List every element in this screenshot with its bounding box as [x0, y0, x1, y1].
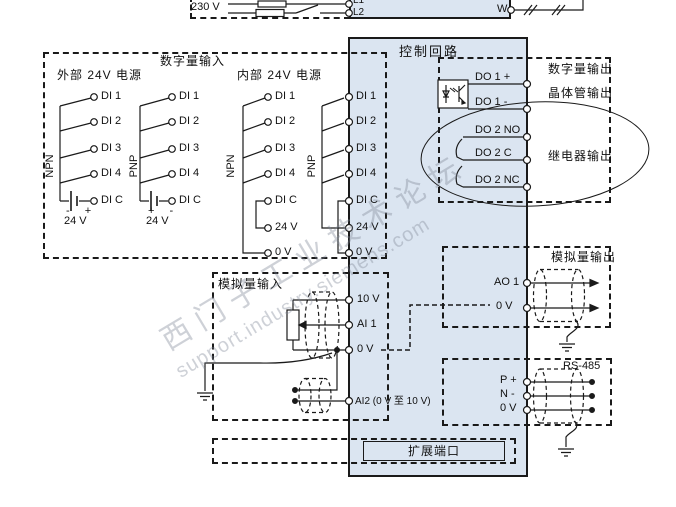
terminal-dic: DI C — [356, 194, 378, 207]
analog-input-title: 模拟量输入 — [218, 277, 283, 291]
terminal-w: W — [497, 3, 507, 16]
wiring-diagram: 230 V L1 L2 W 控制回路 数字量输入 外部 24V 电源 内部 24… — [0, 0, 676, 507]
int-npn-24v: 24 V — [275, 221, 298, 234]
terminal-ai-0v: 0 V — [357, 343, 374, 356]
internal-supply-label: 内部 24V 电源 — [237, 68, 322, 82]
int-npn-di4: DI 4 — [275, 167, 295, 180]
terminal-di1: DI 1 — [356, 90, 376, 103]
transistor-output-label: 晶体管输出 — [548, 86, 613, 100]
terminal-do1p: DO 1 + — [475, 71, 510, 84]
ext-pnp-dic: DI C — [179, 194, 201, 207]
pnp-label-internal: PNP — [306, 146, 318, 186]
ext-pnp-di3: DI 3 — [179, 142, 199, 155]
ext-npn-di3: DI 3 — [101, 142, 121, 155]
digital-output-box — [438, 57, 611, 203]
ext-npn-24v: 24 V — [64, 215, 87, 228]
int-npn-di2: DI 2 — [275, 115, 295, 128]
rs485-title: RS-485 — [563, 360, 600, 373]
ext-npn-di2: DI 2 — [101, 115, 121, 128]
pnp-label-external: PNP — [128, 146, 140, 186]
digital-input-box — [43, 52, 387, 259]
terminal-ai1: AI 1 — [357, 318, 377, 331]
terminal-ao1: AO 1 — [494, 276, 519, 289]
ext-pnp-di1: DI 1 — [179, 90, 199, 103]
control-circuit-title: 控制回路 — [349, 41, 509, 60]
terminal-do2c: DO 2 C — [475, 147, 512, 160]
terminal-p: P + — [500, 374, 517, 387]
terminal-n: N - — [500, 388, 515, 401]
ext-npn-di1: DI 1 — [101, 90, 121, 103]
mains-voltage-label: 230 V — [191, 1, 220, 14]
terminal-0v: 0 V — [356, 246, 373, 259]
int-npn-di3: DI 3 — [275, 142, 295, 155]
terminal-do2nc: DO 2 NC — [475, 174, 520, 187]
terminal-di4: DI 4 — [356, 167, 376, 180]
int-npn-0v: 0 V — [275, 246, 292, 259]
int-npn-di1: DI 1 — [275, 90, 295, 103]
terminal-do1m: DO 1 - — [475, 96, 507, 109]
int-npn-dic: DI C — [275, 194, 297, 207]
ext-npn-dic: DI C — [101, 194, 123, 207]
terminal-di3: DI 3 — [356, 142, 376, 155]
ext-npn-di4: DI 4 — [101, 167, 121, 180]
npn-label-external: NPN — [44, 146, 56, 186]
expansion-port-label: 扩展端口 — [363, 444, 505, 458]
terminal-24v: 24 V — [356, 221, 379, 234]
terminal-ai2: AI2 (0 V 至 10 V) — [355, 395, 431, 408]
terminal-di2: DI 2 — [356, 115, 376, 128]
terminal-rs-0v: 0 V — [500, 402, 517, 415]
external-supply-label: 外部 24V 电源 — [57, 68, 142, 82]
motor-wire — [515, 0, 584, 15]
ext-pnp-24v: 24 V — [146, 215, 169, 228]
terminal-10v: 10 V — [357, 293, 380, 306]
power-circuit-panel — [349, 0, 511, 19]
digital-input-title: 数字量输入 — [160, 54, 225, 68]
ext-pnp-di4: DI 4 — [179, 167, 199, 180]
npn-label-internal: NPN — [225, 146, 237, 186]
digital-output-title: 数字量输出 — [548, 62, 613, 76]
analog-output-title: 模拟量输出 — [551, 250, 616, 264]
ext-pnp-di2: DI 2 — [179, 115, 199, 128]
relay-output-label: 继电器输出 — [548, 149, 613, 163]
terminal-ao-0v: 0 V — [496, 300, 513, 313]
terminal-do2no: DO 2 NO — [475, 124, 520, 137]
terminal-l2: L2 — [353, 6, 364, 19]
